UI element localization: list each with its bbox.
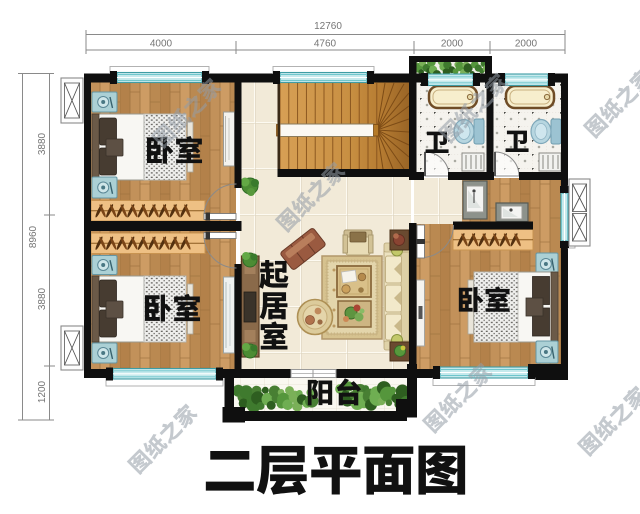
svg-text:4760: 4760 xyxy=(314,39,337,50)
svg-text:12760: 12760 xyxy=(314,21,342,32)
svg-text:2000: 2000 xyxy=(515,39,538,50)
svg-text:4000: 4000 xyxy=(150,39,173,50)
svg-text:3880: 3880 xyxy=(37,132,48,155)
svg-text:2000: 2000 xyxy=(441,39,464,50)
svg-text:1200: 1200 xyxy=(37,380,48,403)
svg-text:8960: 8960 xyxy=(28,225,39,248)
svg-text:3880: 3880 xyxy=(37,287,48,310)
